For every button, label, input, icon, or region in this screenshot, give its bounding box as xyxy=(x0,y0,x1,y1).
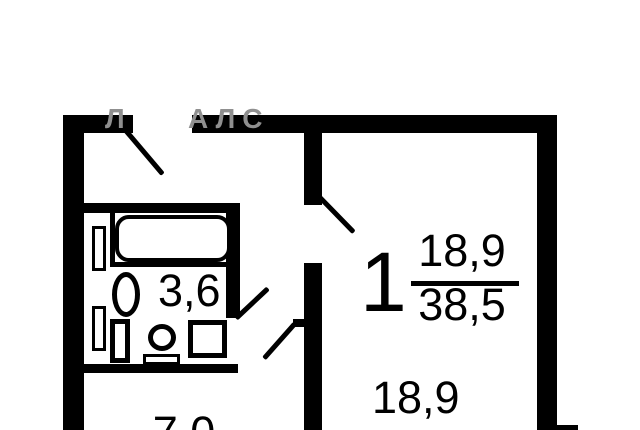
wall-bathroom-bottom xyxy=(84,364,238,373)
room-count-label: 1 xyxy=(360,240,407,324)
watermark-text-left: Л xyxy=(105,105,132,133)
wall-left xyxy=(63,115,84,430)
bathtub-icon xyxy=(115,215,231,262)
entrance-door-swing-line xyxy=(122,127,165,176)
washing-machine-icon xyxy=(188,320,227,358)
watermark-text-right: АЛС xyxy=(188,105,269,133)
toilet-bowl-icon xyxy=(112,272,140,317)
corridor-door-swing-line xyxy=(262,322,297,361)
total-area-label: 38,5 xyxy=(404,282,520,327)
wall-inner-top xyxy=(304,133,322,205)
toilet-tank-icon xyxy=(110,319,130,363)
living-room-door-swing-line xyxy=(317,195,355,234)
room-area-label: 18,9 xyxy=(372,375,460,420)
living-area-label: 18,9 xyxy=(404,228,520,273)
wall-right xyxy=(537,115,557,430)
sink-pedestal-icon xyxy=(143,354,180,365)
bathroom-area-label: 3,6 xyxy=(158,268,221,313)
wall-inner-bottom xyxy=(304,263,322,430)
duct-icon xyxy=(92,306,106,351)
sink-icon xyxy=(148,324,176,351)
corridor-area-label: 7,0 xyxy=(152,410,216,430)
duct-icon xyxy=(92,226,106,271)
wall-bathroom-top xyxy=(84,203,240,213)
floorplan: Л АЛС 3,6 7,0 1 18,9 38,5 18,9 xyxy=(0,0,640,430)
wall-bottom-right-stub xyxy=(556,425,578,430)
